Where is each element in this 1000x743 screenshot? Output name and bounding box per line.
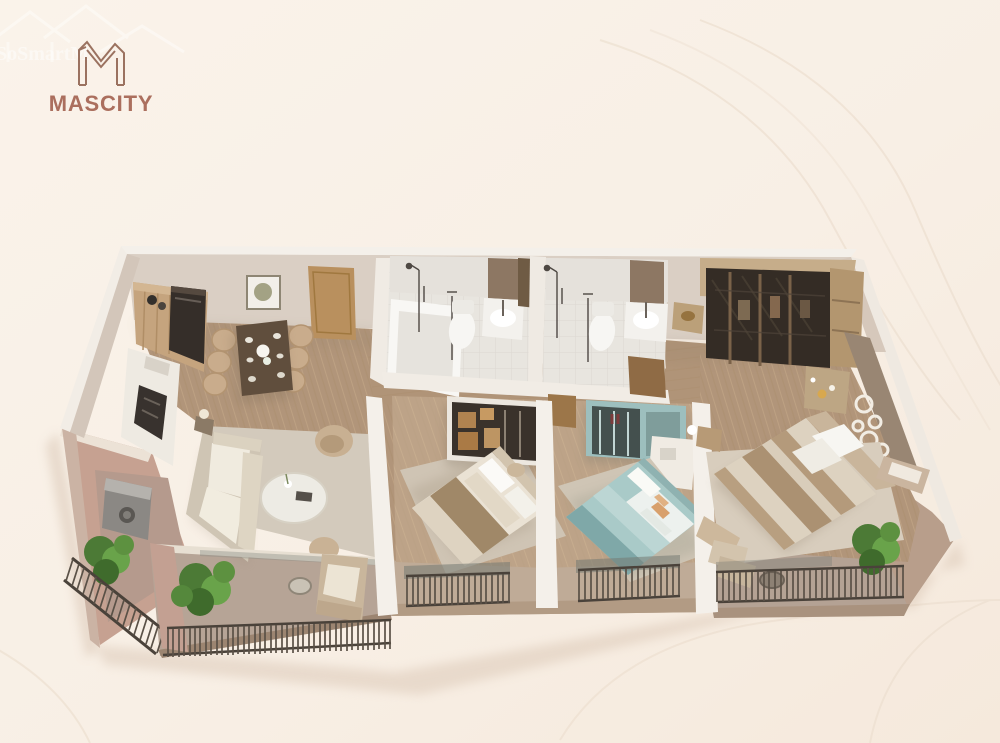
svg-text:SoSmartM: SoSmartM [0,43,89,65]
svg-text:MASCITY: MASCITY [49,91,154,116]
